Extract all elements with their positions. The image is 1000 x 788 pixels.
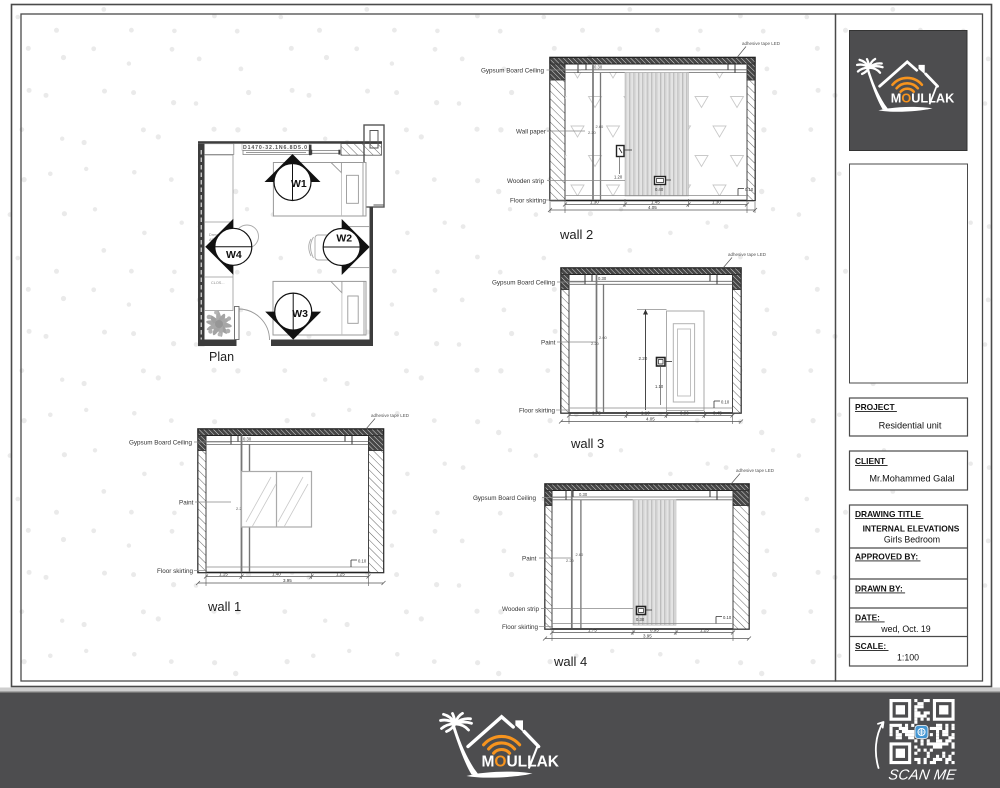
svg-text:wall 4: wall 4 [553,654,587,669]
svg-text:2.60: 2.60 [596,124,605,129]
svg-text:Floor skirting: Floor skirting [519,408,556,415]
svg-text:0.45: 0.45 [713,411,722,416]
svg-text:CLOS...: CLOS... [211,281,225,285]
svg-text:1.30: 1.30 [590,200,599,205]
svg-text:SCALE:: SCALE: [855,641,889,651]
svg-text:adhesive tape LED: adhesive tape LED [742,41,781,46]
svg-text:0.30: 0.30 [579,492,588,497]
svg-text:Gypsum Board Ceiling: Gypsum Board Ceiling [129,440,192,447]
svg-text:wall 3: wall 3 [570,436,604,451]
svg-text:1.30: 1.30 [712,200,721,205]
svg-text:SCAN ME: SCAN ME [887,768,957,784]
svg-text:1.10: 1.10 [641,411,650,416]
svg-text:0.30: 0.30 [636,617,645,622]
svg-text:3.95: 3.95 [283,578,292,583]
svg-text:2.20: 2.20 [639,356,648,361]
svg-text:2.60: 2.60 [576,552,585,557]
svg-text:0.30: 0.30 [598,276,607,281]
svg-text:INTERNAL ELEVATIONS: INTERNAL ELEVATIONS [863,524,960,534]
svg-text:1.75: 1.75 [592,411,601,416]
svg-text:Paint: Paint [541,340,556,347]
svg-text:1.25: 1.25 [700,628,709,633]
svg-text:Floor skirting: Floor skirting [510,198,547,205]
svg-text:adhesive tape LED: adhesive tape LED [371,413,410,418]
svg-text:DRAWING TITLE: DRAWING TITLE [855,509,923,519]
svg-text:Floor skirting: Floor skirting [502,624,539,631]
svg-text:CLIENT: CLIENT [855,456,888,466]
svg-text:0.10: 0.10 [358,559,367,564]
svg-text:4.05: 4.05 [646,417,655,422]
svg-text:0.95: 0.95 [650,628,659,633]
svg-text:wed, Oct. 19: wed, Oct. 19 [880,624,930,634]
svg-text:Gypsum Board Ceiling: Gypsum Board Ceiling [492,280,555,287]
svg-text:2.20: 2.20 [566,558,575,563]
svg-text:Wall paper: Wall paper [516,129,546,136]
svg-text:Girls Bedroom: Girls Bedroom [884,535,940,545]
svg-text:0.10: 0.10 [745,187,754,192]
svg-text:Residential unit: Residential unit [879,421,942,431]
svg-text:Mr.Mohammed Galal: Mr.Mohammed Galal [869,474,954,484]
svg-text:DRAWN BY:: DRAWN BY: [855,584,905,594]
svg-text:0.90: 0.90 [680,411,689,416]
svg-text:wall 1: wall 1 [207,599,241,614]
svg-text:wall 2: wall 2 [559,227,593,242]
svg-text:adhesive tape LED: adhesive tape LED [736,468,775,473]
svg-text:Wooden strip: Wooden strip [507,178,544,185]
svg-text:Gypsum Board Ceiling: Gypsum Board Ceiling [473,495,536,502]
svg-text:1.10: 1.10 [655,384,664,389]
svg-text:Wooden strip: Wooden strip [502,606,539,613]
svg-text:W3: W3 [292,308,308,320]
svg-text:W1: W1 [291,178,307,190]
svg-text:Gypsum Board Ceiling: Gypsum Board Ceiling [481,68,544,75]
svg-text:2.20: 2.20 [588,130,597,135]
svg-text:APPROVED BY:: APPROVED BY: [855,552,920,562]
svg-text:1.25: 1.25 [336,572,345,577]
svg-text:Plan: Plan [209,350,234,364]
svg-text:0.10: 0.10 [723,615,732,620]
svg-text:1:100: 1:100 [897,653,919,663]
svg-text:0.30: 0.30 [243,437,252,442]
svg-text:1.45: 1.45 [651,200,660,205]
svg-text:0.30: 0.30 [594,65,603,70]
svg-text:DATE:: DATE: [855,613,885,623]
svg-text:adhesive tape LED: adhesive tape LED [728,252,767,257]
svg-text:1.75: 1.75 [588,628,597,633]
svg-text:PROJECT: PROJECT [855,402,897,412]
svg-text:4.05: 4.05 [648,205,657,210]
svg-text:Paint: Paint [179,500,194,507]
svg-text:3.95: 3.95 [643,634,652,639]
svg-text:W2: W2 [336,233,352,245]
svg-text:Paint: Paint [522,556,537,563]
svg-text:2.60: 2.60 [599,335,608,340]
svg-text:W4: W4 [226,249,242,261]
svg-text:1.40: 1.40 [272,572,281,577]
svg-text:0.10: 0.10 [721,400,730,405]
svg-text:0.40: 0.40 [655,187,664,192]
svg-text:1.20: 1.20 [614,175,623,180]
svg-text:Floor skirting: Floor skirting [157,568,194,575]
svg-text:1.15: 1.15 [219,572,228,577]
